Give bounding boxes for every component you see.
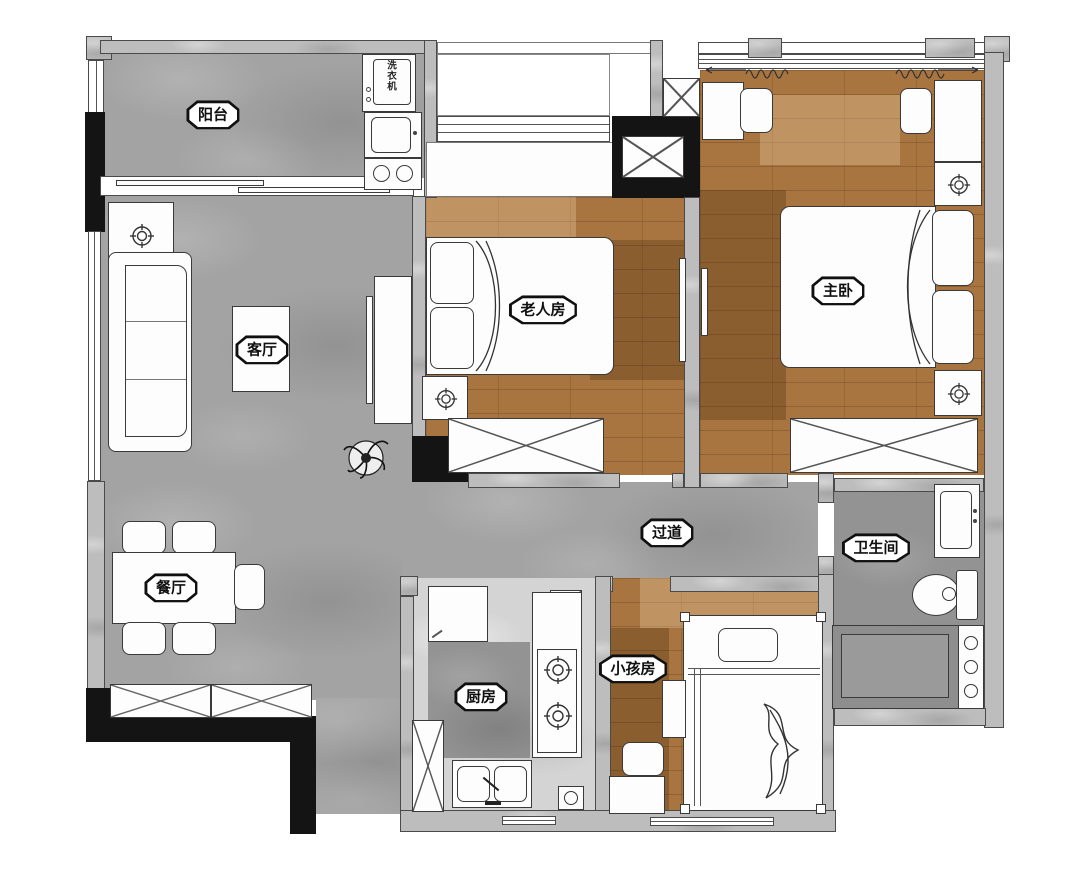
stool [622, 742, 664, 776]
lamp-icon [434, 387, 458, 411]
balcony-cabinet [364, 158, 422, 190]
nightstand [934, 370, 982, 416]
lamp-icon [947, 173, 971, 197]
dining-chair [172, 521, 216, 554]
wall [468, 473, 620, 488]
wall-black [290, 716, 316, 834]
toilet-tank [956, 570, 978, 620]
wall [925, 38, 975, 58]
room-label-text: 卫生间 [844, 536, 907, 560]
knob [366, 87, 371, 92]
wall [818, 556, 834, 576]
tall-cabinet [412, 720, 444, 812]
toilet [912, 570, 982, 620]
wall-black [85, 112, 105, 232]
wall [650, 40, 663, 118]
storage-cabinet [663, 78, 700, 117]
window [88, 60, 104, 113]
wall [748, 38, 782, 58]
curtain-icon [700, 64, 790, 80]
door-leaf [679, 258, 686, 362]
bed-post [680, 804, 690, 814]
cushion [740, 88, 773, 133]
basin [371, 117, 411, 153]
plant-icon [336, 426, 396, 486]
wall [984, 52, 1004, 728]
sheet-line [694, 668, 695, 806]
nightstand [662, 680, 686, 738]
tv-cabinet [374, 276, 412, 424]
shelf-circle [964, 636, 978, 650]
bench [702, 82, 744, 140]
bed [683, 615, 823, 811]
sheet-line [688, 668, 820, 669]
sideboard-cabinet [110, 684, 211, 718]
burner-icon [543, 701, 573, 731]
shelf-circle [964, 660, 978, 674]
wall [684, 197, 700, 488]
wall-black [86, 716, 316, 742]
kitchen-sink [452, 760, 532, 808]
shower-shelf [958, 625, 984, 709]
window [502, 816, 556, 825]
room-label-balcony: 阳台 [186, 100, 239, 129]
blanket-drape [892, 208, 932, 366]
shower-inner [841, 634, 949, 698]
wall [670, 576, 833, 592]
bed-post [680, 612, 690, 622]
pillow [430, 242, 474, 304]
floor-patch [760, 95, 900, 165]
shelf-circle [964, 684, 978, 698]
bed-post [816, 612, 826, 622]
bay-ledge [437, 42, 652, 54]
washing-machine: 洗衣机 [362, 54, 416, 112]
floor-patch [700, 190, 786, 420]
room-label-text: 过道 [643, 521, 691, 545]
room-label-text: 阳台 [189, 103, 237, 127]
tap-dot [973, 509, 977, 513]
bay [437, 54, 610, 116]
window [88, 231, 101, 481]
basin [494, 766, 527, 802]
fridge [428, 586, 488, 642]
pillow [718, 628, 778, 662]
sofa-seat [125, 265, 187, 437]
storage-cabinet [622, 136, 684, 178]
window [437, 116, 610, 142]
curtain-icon [888, 64, 984, 80]
tap-dot [413, 131, 417, 135]
dining-chair [122, 622, 166, 655]
balcony-sink [364, 112, 422, 158]
room-label-text: 老人房 [511, 298, 574, 322]
cushion [900, 88, 932, 134]
window [650, 817, 774, 826]
fridge-mark [432, 630, 443, 638]
room-label-elder: 老人房 [509, 295, 577, 324]
washbasin [934, 484, 980, 558]
door-leaf [701, 268, 708, 336]
basin [457, 766, 490, 802]
room-label-text: 小孩房 [601, 657, 664, 681]
drain-circle [564, 791, 578, 805]
dining-chair [122, 521, 166, 554]
sofa [108, 252, 192, 452]
stove-counter [532, 592, 582, 758]
basin [940, 491, 972, 549]
room-label-text: 厨房 [457, 685, 505, 709]
washing-machine-label: 洗衣机 [383, 60, 397, 92]
room-label-kitchen: 厨房 [454, 682, 507, 711]
cushion-line [126, 379, 186, 380]
dining-chair [172, 622, 216, 655]
circle [396, 165, 413, 182]
dining-chair [234, 564, 265, 610]
sheet-line [688, 674, 820, 675]
cushion-line [126, 321, 186, 322]
wall [818, 473, 834, 503]
wardrobe-cabinet [448, 418, 604, 473]
room-label-master: 主卧 [811, 276, 864, 305]
room-label-dining: 餐厅 [144, 573, 197, 602]
room-label-text: 餐厅 [147, 576, 195, 600]
pillow [430, 307, 474, 369]
cabinet [609, 776, 665, 814]
faucet-base [485, 801, 501, 805]
blanket-drape [474, 239, 508, 373]
nightstand [934, 162, 982, 206]
circle [373, 165, 390, 182]
dresser [934, 80, 982, 162]
bed-post [816, 804, 826, 814]
sliding-door-leaf [116, 180, 264, 186]
tap-dot [973, 519, 977, 523]
entry-hall-floor [316, 698, 402, 814]
sideboard-cabinet [211, 684, 312, 718]
hallway-floor [402, 482, 818, 578]
wall [700, 473, 788, 488]
nightstand [422, 376, 468, 420]
bay-seat [426, 142, 614, 197]
pillow [932, 290, 974, 364]
flush-button [942, 587, 956, 601]
floor-plan: 洗衣机 [0, 0, 1080, 874]
room-label-text: 主卧 [814, 279, 862, 303]
wardrobe-cabinet [790, 418, 978, 473]
wall [672, 473, 684, 488]
burner-icon [543, 655, 573, 685]
wall [100, 40, 426, 54]
lamp-icon [947, 382, 971, 406]
wall [834, 708, 986, 726]
room-label-text: 客厅 [238, 338, 286, 362]
sheet-line [700, 668, 701, 806]
room-label-kids: 小孩房 [599, 654, 667, 683]
pillow [932, 210, 974, 286]
room-label-hallway: 过道 [640, 518, 693, 547]
knob [366, 97, 371, 102]
blanket-icon [750, 700, 812, 804]
floor-drain [558, 786, 584, 810]
shower-tray [832, 625, 960, 709]
room-label-bathroom: 卫生间 [842, 533, 910, 562]
wall [400, 576, 418, 596]
tv [366, 296, 373, 404]
lamp-icon [129, 223, 155, 249]
wall [87, 481, 105, 691]
room-label-living: 客厅 [235, 335, 288, 364]
